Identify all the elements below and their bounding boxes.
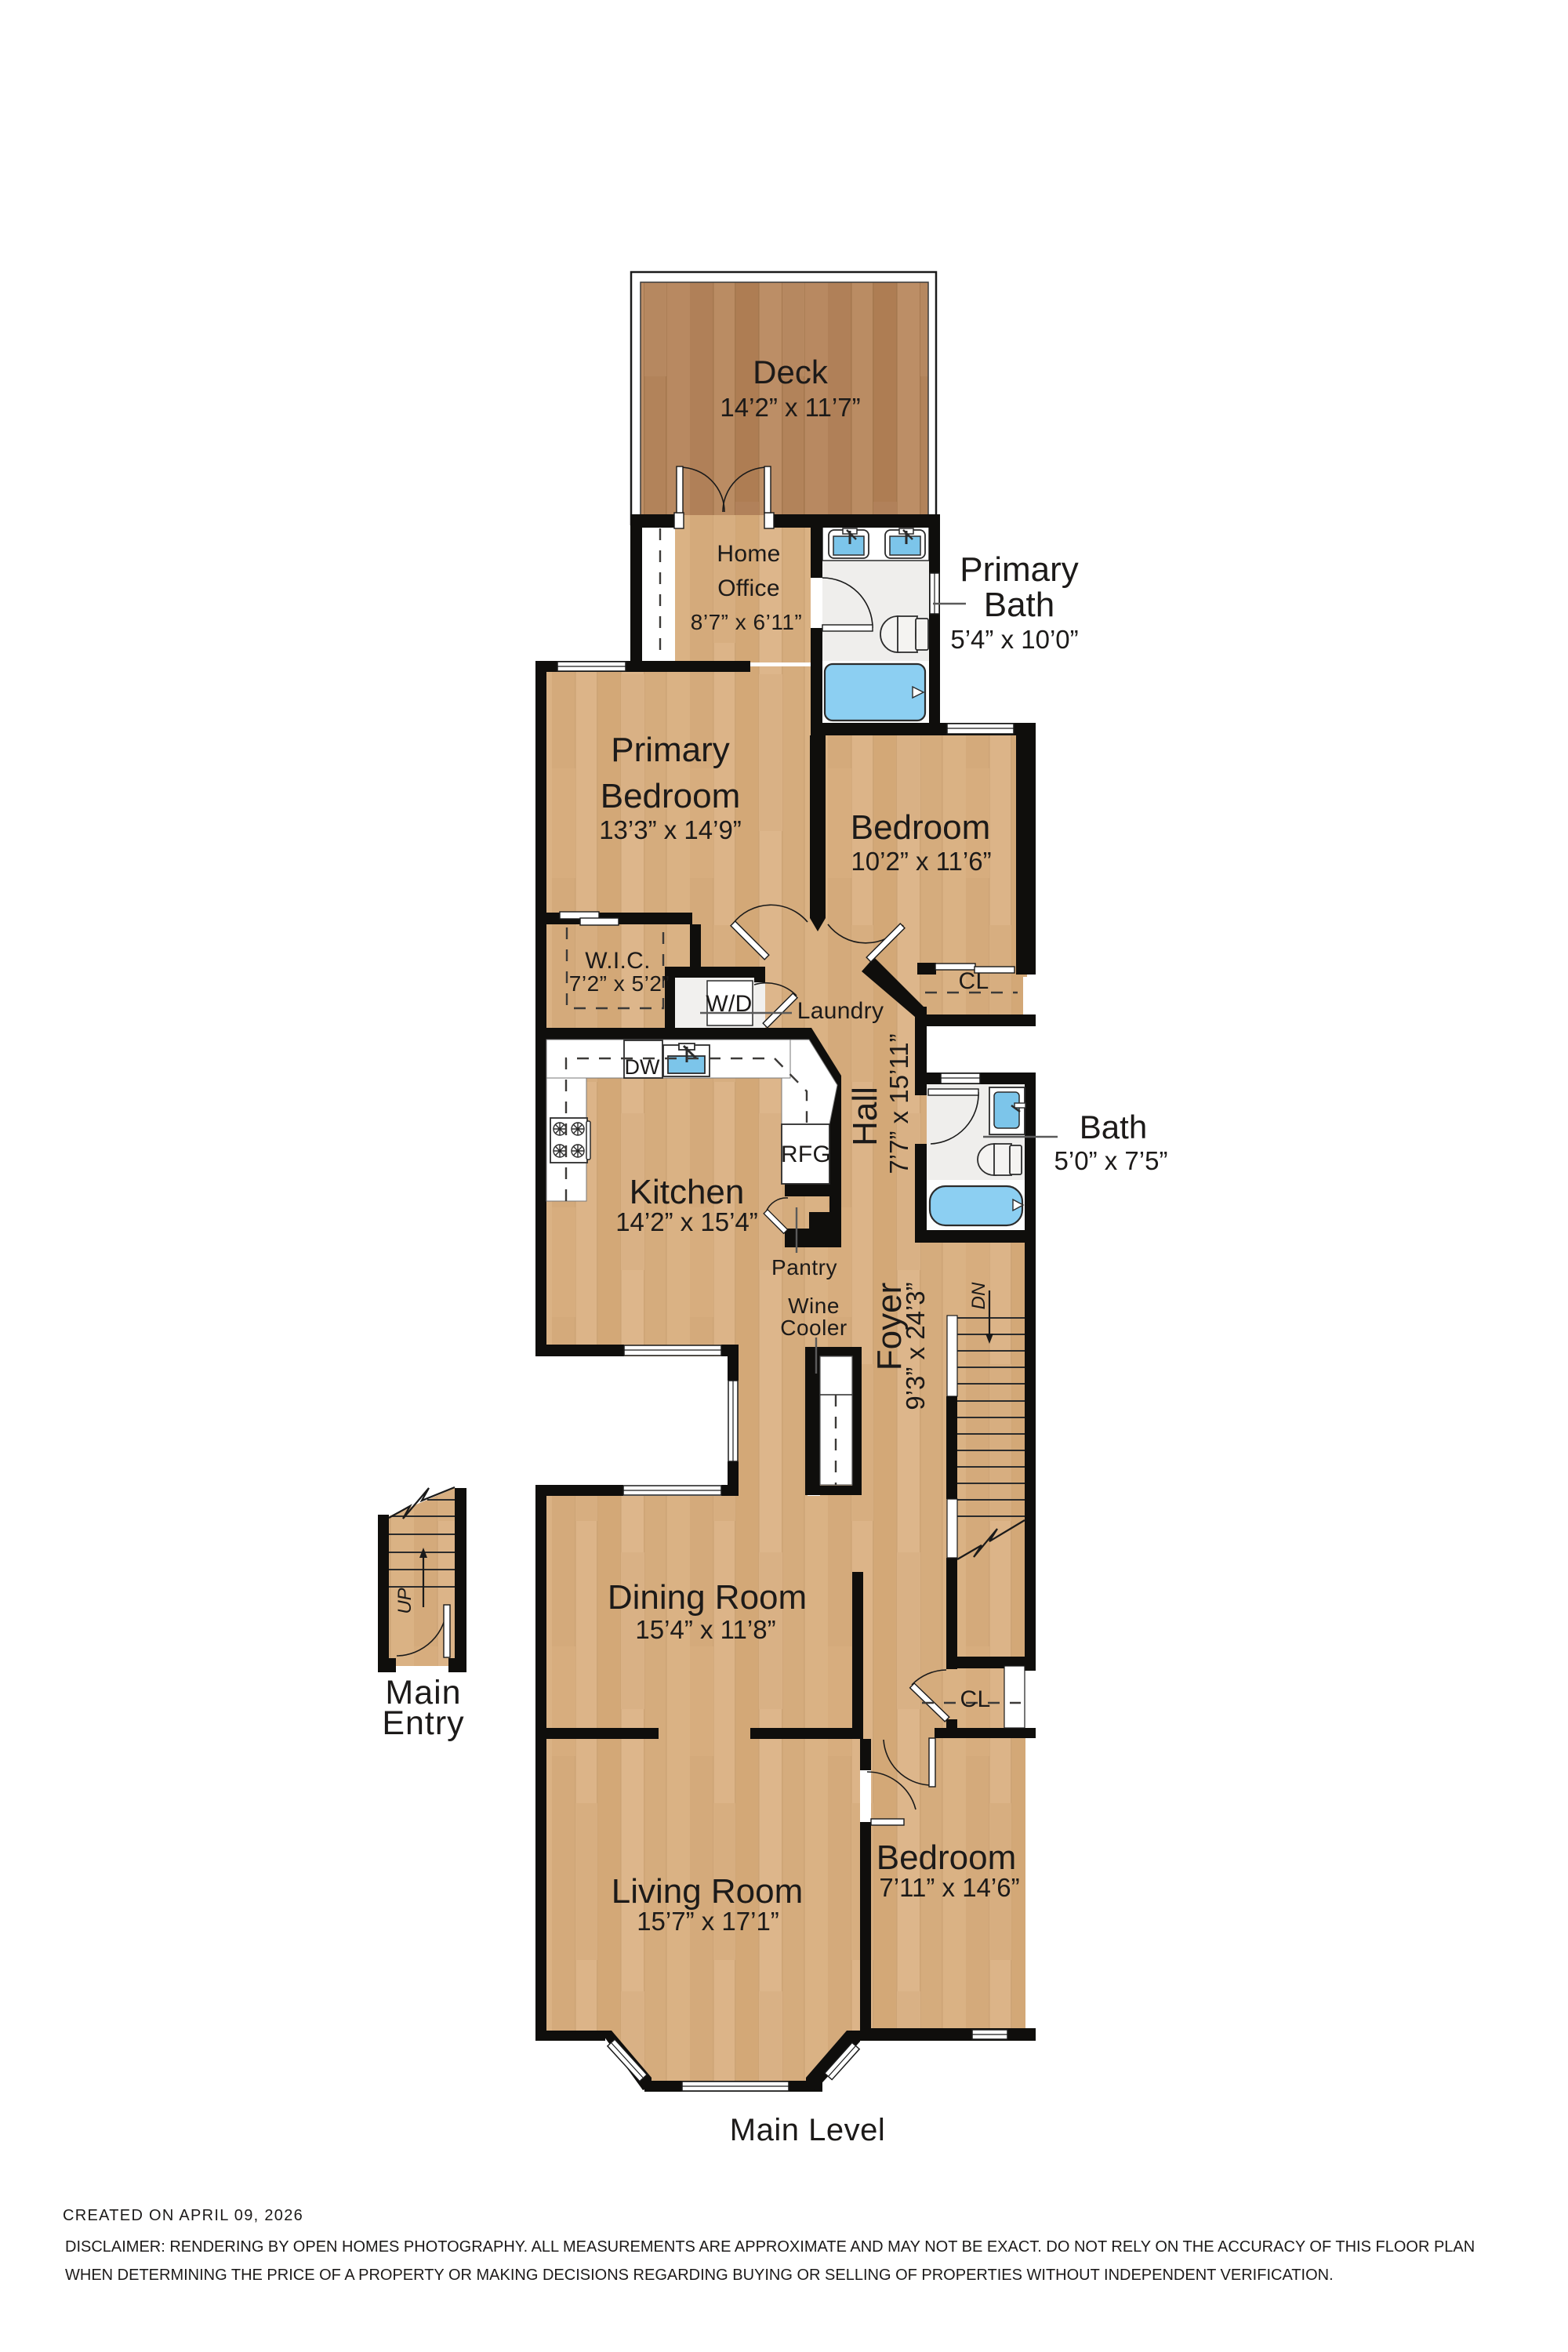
svg-text:13’3” x 14’9”: 13’3” x 14’9” <box>599 815 742 844</box>
svg-text:Bedroom: Bedroom <box>877 1838 1017 1877</box>
svg-text:7’11” x 14’6”: 7’11” x 14’6” <box>879 1873 1019 1902</box>
svg-text:Bedroom: Bedroom <box>601 777 741 815</box>
svg-text:CREATED ON APRIL 09, 2026: CREATED ON APRIL 09, 2026 <box>63 2207 303 2224</box>
svg-text:7’7” x 15’11”: 7’7” x 15’11” <box>884 1033 913 1174</box>
svg-text:DW: DW <box>625 1055 660 1079</box>
svg-text:Deck: Deck <box>753 354 829 390</box>
svg-text:Home: Home <box>717 541 780 567</box>
svg-text:15’7” x 17’1”: 15’7” x 17’1” <box>637 1907 779 1936</box>
svg-text:Pantry: Pantry <box>771 1255 837 1279</box>
svg-text:14’2” x 15’4”: 14’2” x 15’4” <box>615 1207 758 1236</box>
svg-text:5’0” x 7’5”: 5’0” x 7’5” <box>1054 1146 1168 1175</box>
svg-text:Main Level: Main Level <box>730 2113 885 2147</box>
svg-text:Office: Office <box>717 575 780 601</box>
svg-text:Cooler: Cooler <box>780 1316 847 1340</box>
svg-text:RFG: RFG <box>781 1142 831 1167</box>
svg-text:UP: UP <box>394 1588 416 1613</box>
svg-text:15’4” x 11’8”: 15’4” x 11’8” <box>635 1615 775 1644</box>
svg-text:Primary: Primary <box>960 550 1079 589</box>
svg-text:7’2” x 5’2”: 7’2” x 5’2” <box>569 971 670 996</box>
svg-text:WHEN DETERMINING THE PRICE OF: WHEN DETERMINING THE PRICE OF A PROPERTY… <box>65 2267 1334 2284</box>
svg-text:Bath: Bath <box>984 586 1055 624</box>
svg-text:Primary: Primary <box>611 731 730 769</box>
svg-text:Dining Room: Dining Room <box>608 1578 807 1617</box>
svg-text:W.I.C.: W.I.C. <box>585 948 650 974</box>
svg-text:10’2” x 11’6”: 10’2” x 11’6” <box>851 847 991 876</box>
svg-text:Bath: Bath <box>1080 1109 1147 1145</box>
svg-text:Hall: Hall <box>846 1087 884 1146</box>
svg-text:DISCLAIMER: RENDERING BY OPEN: DISCLAIMER: RENDERING BY OPEN HOMES PHOT… <box>65 2238 1475 2256</box>
svg-text:8’7” x 6’11”: 8’7” x 6’11” <box>691 610 802 634</box>
svg-text:5’4” x 10’0”: 5’4” x 10’0” <box>950 625 1078 654</box>
svg-text:Bedroom: Bedroom <box>851 808 991 847</box>
svg-text:Entry: Entry <box>382 1704 464 1742</box>
svg-text:CL: CL <box>960 1686 991 1712</box>
svg-text:DN: DN <box>968 1282 989 1309</box>
svg-text:Kitchen: Kitchen <box>630 1173 745 1211</box>
svg-text:CL: CL <box>959 968 989 994</box>
svg-text:14’2” x 11’7”: 14’2” x 11’7” <box>720 393 860 422</box>
svg-text:Living Room: Living Room <box>612 1872 804 1911</box>
svg-text:9’3” x 24’3”: 9’3” x 24’3” <box>901 1282 930 1410</box>
svg-text:Wine: Wine <box>788 1294 840 1318</box>
svg-text:W/D: W/D <box>706 991 752 1017</box>
svg-text:Laundry: Laundry <box>797 998 884 1024</box>
